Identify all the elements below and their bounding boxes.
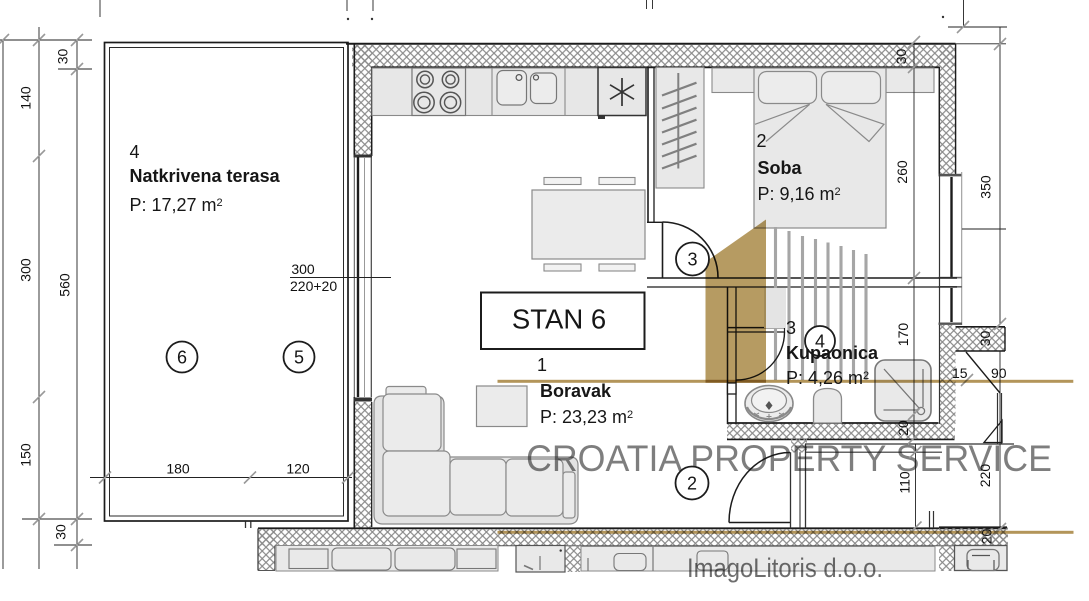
svg-text:CROATIA PROPERTY SERVICE: CROATIA PROPERTY SERVICE — [526, 437, 1052, 479]
svg-text:20: 20 — [895, 420, 911, 436]
svg-text:P: 9,16 m2: P: 9,16 m2 — [758, 184, 841, 204]
svg-text:Soba: Soba — [758, 158, 803, 178]
svg-text:30: 30 — [53, 524, 69, 540]
svg-text:30: 30 — [893, 49, 909, 65]
svg-text:15: 15 — [952, 365, 968, 381]
svg-text:P: 4,26 m2: P: 4,26 m2 — [786, 368, 869, 388]
svg-text:3: 3 — [786, 318, 796, 338]
svg-text:ImagoLitoris d.o.o.: ImagoLitoris d.o.o. — [687, 553, 883, 583]
svg-text:260: 260 — [894, 160, 910, 184]
svg-text:300: 300 — [18, 258, 34, 282]
svg-text:Boravak: Boravak — [540, 381, 612, 401]
svg-text:300: 300 — [291, 261, 315, 277]
svg-text:30: 30 — [977, 331, 993, 347]
svg-text:170: 170 — [895, 323, 911, 347]
svg-text:560: 560 — [57, 273, 73, 297]
svg-text:4: 4 — [130, 142, 140, 162]
svg-text:30: 30 — [55, 49, 71, 65]
svg-text:350: 350 — [978, 175, 994, 199]
svg-text:90: 90 — [991, 365, 1007, 381]
svg-text:Natkrivena terasa: Natkrivena terasa — [130, 166, 281, 186]
svg-text:120: 120 — [286, 461, 310, 477]
svg-text:220+20: 220+20 — [290, 278, 337, 294]
svg-text:2: 2 — [687, 474, 697, 494]
svg-text:Kupaonica: Kupaonica — [786, 343, 879, 363]
svg-text:1: 1 — [537, 355, 547, 375]
svg-text:150: 150 — [18, 443, 34, 467]
svg-text:2: 2 — [757, 131, 767, 151]
svg-text:3: 3 — [687, 250, 697, 270]
svg-text:110: 110 — [897, 471, 913, 494]
svg-text:6: 6 — [177, 348, 187, 368]
svg-text:P: 17,27 m2: P: 17,27 m2 — [130, 195, 223, 215]
svg-text:180: 180 — [166, 461, 190, 477]
svg-text:220: 220 — [977, 464, 993, 488]
svg-text:140: 140 — [18, 86, 34, 110]
svg-text:5: 5 — [294, 348, 304, 368]
svg-text:STAN 6: STAN 6 — [512, 304, 606, 335]
svg-text:P: 23,23 m2: P: 23,23 m2 — [540, 407, 633, 427]
